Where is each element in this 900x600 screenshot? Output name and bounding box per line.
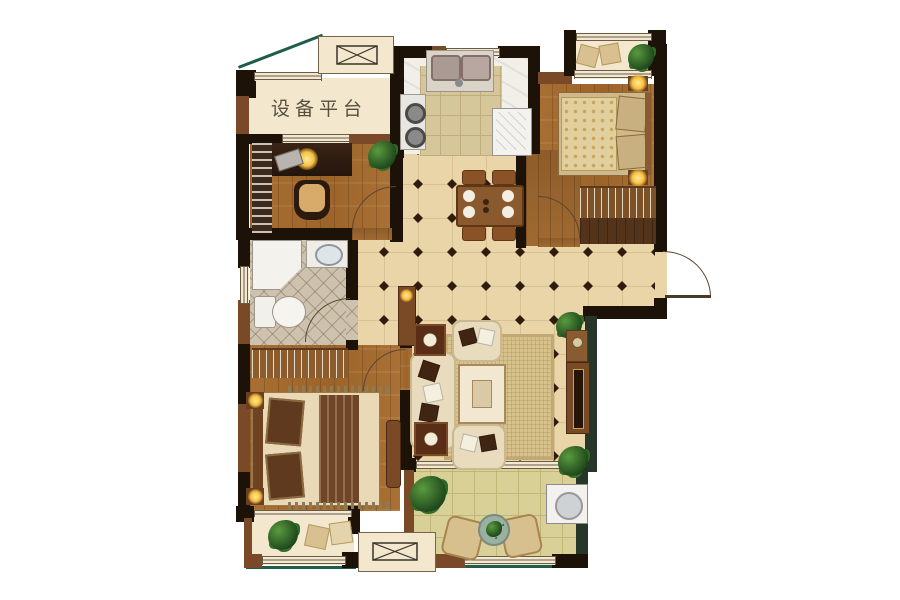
dining-table: [456, 185, 524, 227]
bench: [386, 420, 401, 488]
armchair: [452, 320, 502, 362]
tv-screen: [573, 369, 584, 429]
pillow: [265, 452, 305, 501]
wall-segment: [552, 554, 588, 568]
floorplan-canvas: 设备平台: [0, 0, 900, 600]
side-table: [414, 422, 448, 456]
window: [254, 510, 352, 517]
door-opening: [538, 238, 580, 247]
stove: [400, 94, 426, 150]
headboard: [645, 93, 651, 175]
table-plant: [486, 521, 502, 537]
cabinet-knob: [572, 337, 583, 348]
sink-basin: [315, 244, 343, 266]
pillow: [615, 96, 648, 133]
cushion: [459, 433, 478, 452]
toilet-bowl: [272, 296, 306, 328]
coffee-table: [458, 364, 506, 424]
pillow: [616, 134, 649, 170]
dining-chair: [492, 170, 516, 185]
lamp: [629, 74, 647, 92]
sink-basin: [431, 55, 461, 81]
burner: [405, 127, 426, 148]
dining-chair: [462, 226, 486, 241]
crossed-rect-icon: [372, 542, 418, 561]
cushion: [479, 434, 498, 453]
window: [282, 134, 350, 143]
wall-segment: [236, 136, 249, 230]
bed-blanket: [561, 97, 617, 171]
cushion: [418, 360, 441, 383]
entrance-door-arc: [663, 251, 711, 297]
washer-drum: [555, 492, 583, 520]
plate: [463, 206, 475, 218]
window: [576, 33, 652, 41]
equipment-platform-label: 设备平台: [252, 84, 386, 130]
dish: [483, 207, 489, 213]
cushion: [422, 382, 443, 403]
entrance-door-leaf: [665, 295, 711, 298]
fridge-panel: [496, 112, 526, 150]
lamp: [629, 169, 647, 187]
cushion: [477, 328, 496, 347]
pillow: [265, 398, 305, 447]
bed-runner: [319, 395, 359, 503]
bed: [558, 92, 652, 176]
wardrobe-hangers: [580, 186, 656, 220]
wall-segment: [498, 46, 530, 58]
balcony-table: [478, 514, 510, 546]
dish: [483, 199, 489, 205]
wall-segment: [236, 70, 256, 98]
building-edge: [238, 34, 323, 69]
lamp: [400, 289, 413, 302]
bed-fringe: [288, 502, 392, 509]
wall-segment: [238, 404, 250, 474]
wardrobe-shelf: [580, 218, 656, 244]
entry-cabinet: [566, 330, 588, 362]
bathroom-vanity: [306, 240, 348, 268]
kitchen-sink-counter: [426, 50, 494, 92]
window: [262, 556, 346, 565]
fridge: [492, 108, 532, 156]
window: [254, 72, 322, 81]
pillow: [598, 42, 621, 65]
pillow: [304, 524, 330, 550]
office-chair: [294, 180, 330, 220]
table-decor: [472, 380, 492, 408]
chair-seat: [299, 184, 325, 212]
wall-segment: [238, 300, 250, 346]
window: [240, 266, 249, 304]
cushion: [458, 327, 478, 347]
wall-segment: [238, 236, 250, 268]
bookshelf: [252, 143, 272, 233]
burner: [405, 103, 426, 124]
sink-basin: [461, 55, 491, 81]
lamp: [248, 393, 263, 408]
plate: [502, 190, 514, 202]
tv-console: [566, 362, 590, 434]
plate: [463, 190, 475, 202]
crossed-rect-icon: [336, 45, 378, 65]
armchair: [452, 424, 506, 470]
pillow: [329, 521, 354, 546]
wall-segment: [236, 96, 249, 136]
bed: [252, 392, 380, 506]
dining-chair: [462, 170, 486, 185]
faucet: [455, 79, 463, 87]
dining-chair: [492, 226, 516, 241]
exterior-area: [597, 316, 667, 470]
wall-segment: [244, 554, 262, 568]
building-edge: [246, 566, 356, 569]
side-table: [414, 324, 446, 356]
lamp: [248, 489, 263, 504]
plate: [502, 206, 514, 218]
wardrobe-hangers: [252, 348, 348, 378]
washing-machine: [546, 484, 588, 524]
